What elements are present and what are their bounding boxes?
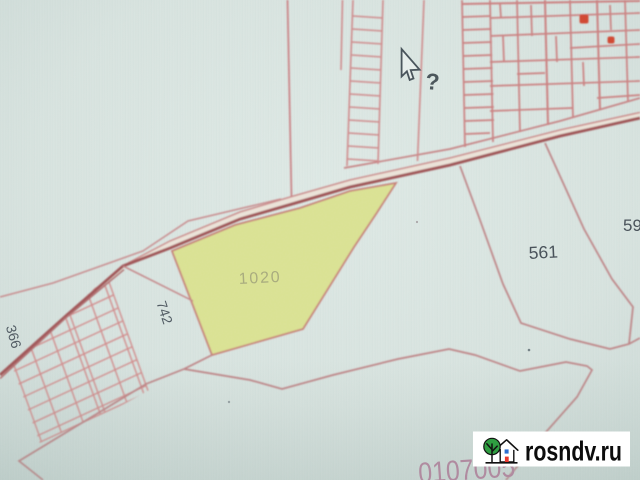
svg-text:1020: 1020: [238, 269, 282, 288]
svg-text:rosndv.ru: rosndv.ru: [525, 436, 622, 467]
svg-text:561: 561: [528, 241, 558, 263]
svg-text:59: 59: [623, 216, 640, 235]
svg-text:?: ?: [425, 68, 441, 95]
